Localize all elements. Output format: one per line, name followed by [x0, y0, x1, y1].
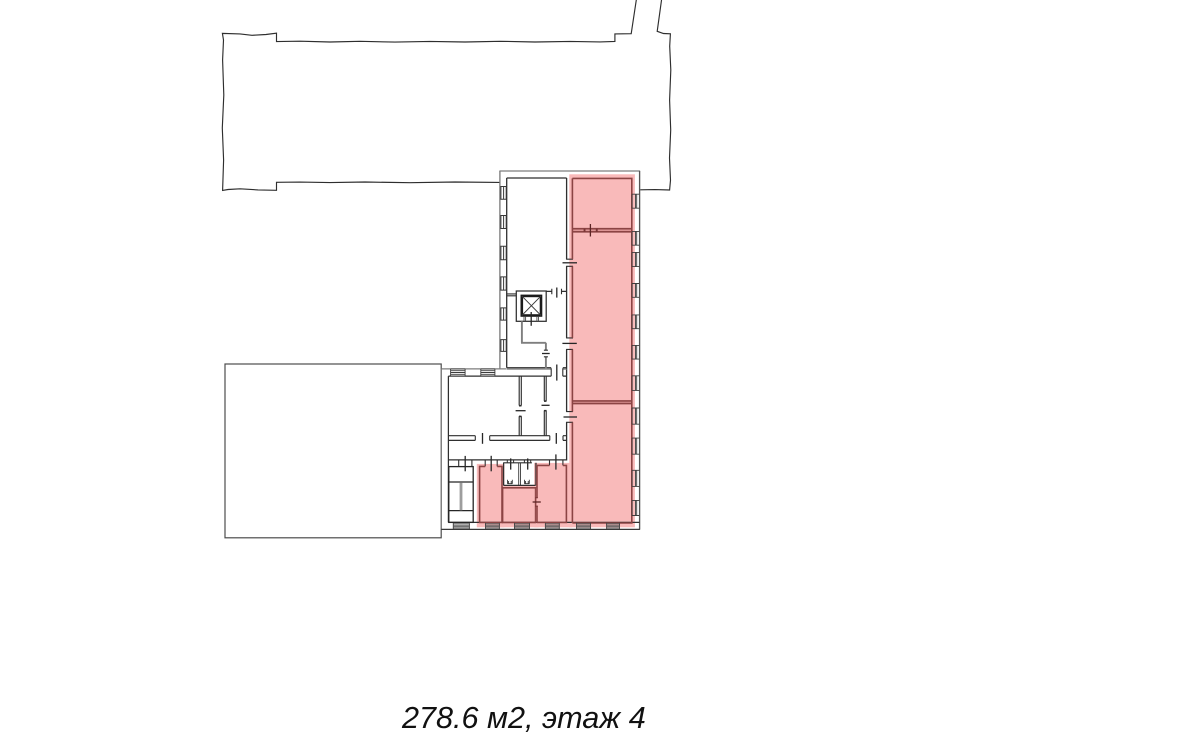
- svg-text:278.6 м2, этаж 4: 278.6 м2, этаж 4: [401, 701, 646, 735]
